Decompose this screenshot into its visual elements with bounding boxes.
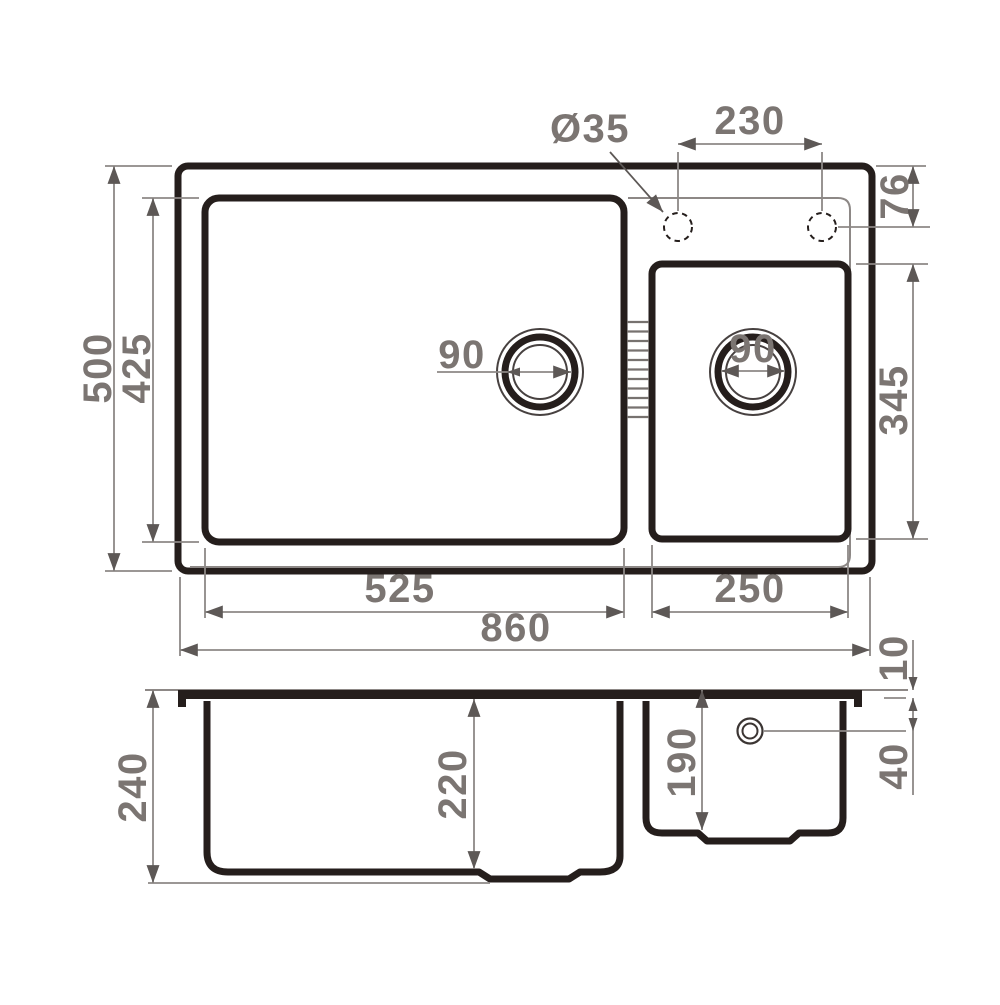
main-bowl [205,198,624,542]
sink-technical-drawing: 90 90 Ø35 230 76 345 [0,0,1000,1000]
right-bowl-inner-depth-label: 190 [660,726,704,797]
main-bowl-depth-label: 425 [115,332,159,403]
overall-width-label: 860 [480,606,551,650]
faucet-diameter-label: Ø35 [550,107,630,151]
main-bowl-inner-depth-label: 220 [431,748,475,819]
overflow-hole-icon [738,719,763,744]
sink-technical-drawing-page: 90 90 Ø35 230 76 345 [0,0,1000,1000]
rim-profile [178,690,862,707]
main-bowl-section [207,701,620,879]
faucet-spacing-label: 230 [714,99,785,143]
main-bowl-width-label: 525 [364,567,435,611]
main-drain-diameter-label: 90 [438,333,486,377]
overall-height-label: 240 [111,751,155,822]
right-bowl [652,264,848,539]
top-view: 90 90 Ø35 230 76 345 [76,99,930,656]
rim-height-label: 10 [872,634,916,682]
right-bowl-depth-label: 345 [872,364,916,435]
faucet-offset-label: 76 [873,172,917,220]
right-bowl-width-label: 250 [714,567,785,611]
overflow-offset-label: 40 [872,742,916,790]
right-drain-diameter-label: 90 [729,327,777,371]
side-view: 240 220 190 10 40 [111,634,918,883]
overall-depth-label: 500 [76,332,120,403]
